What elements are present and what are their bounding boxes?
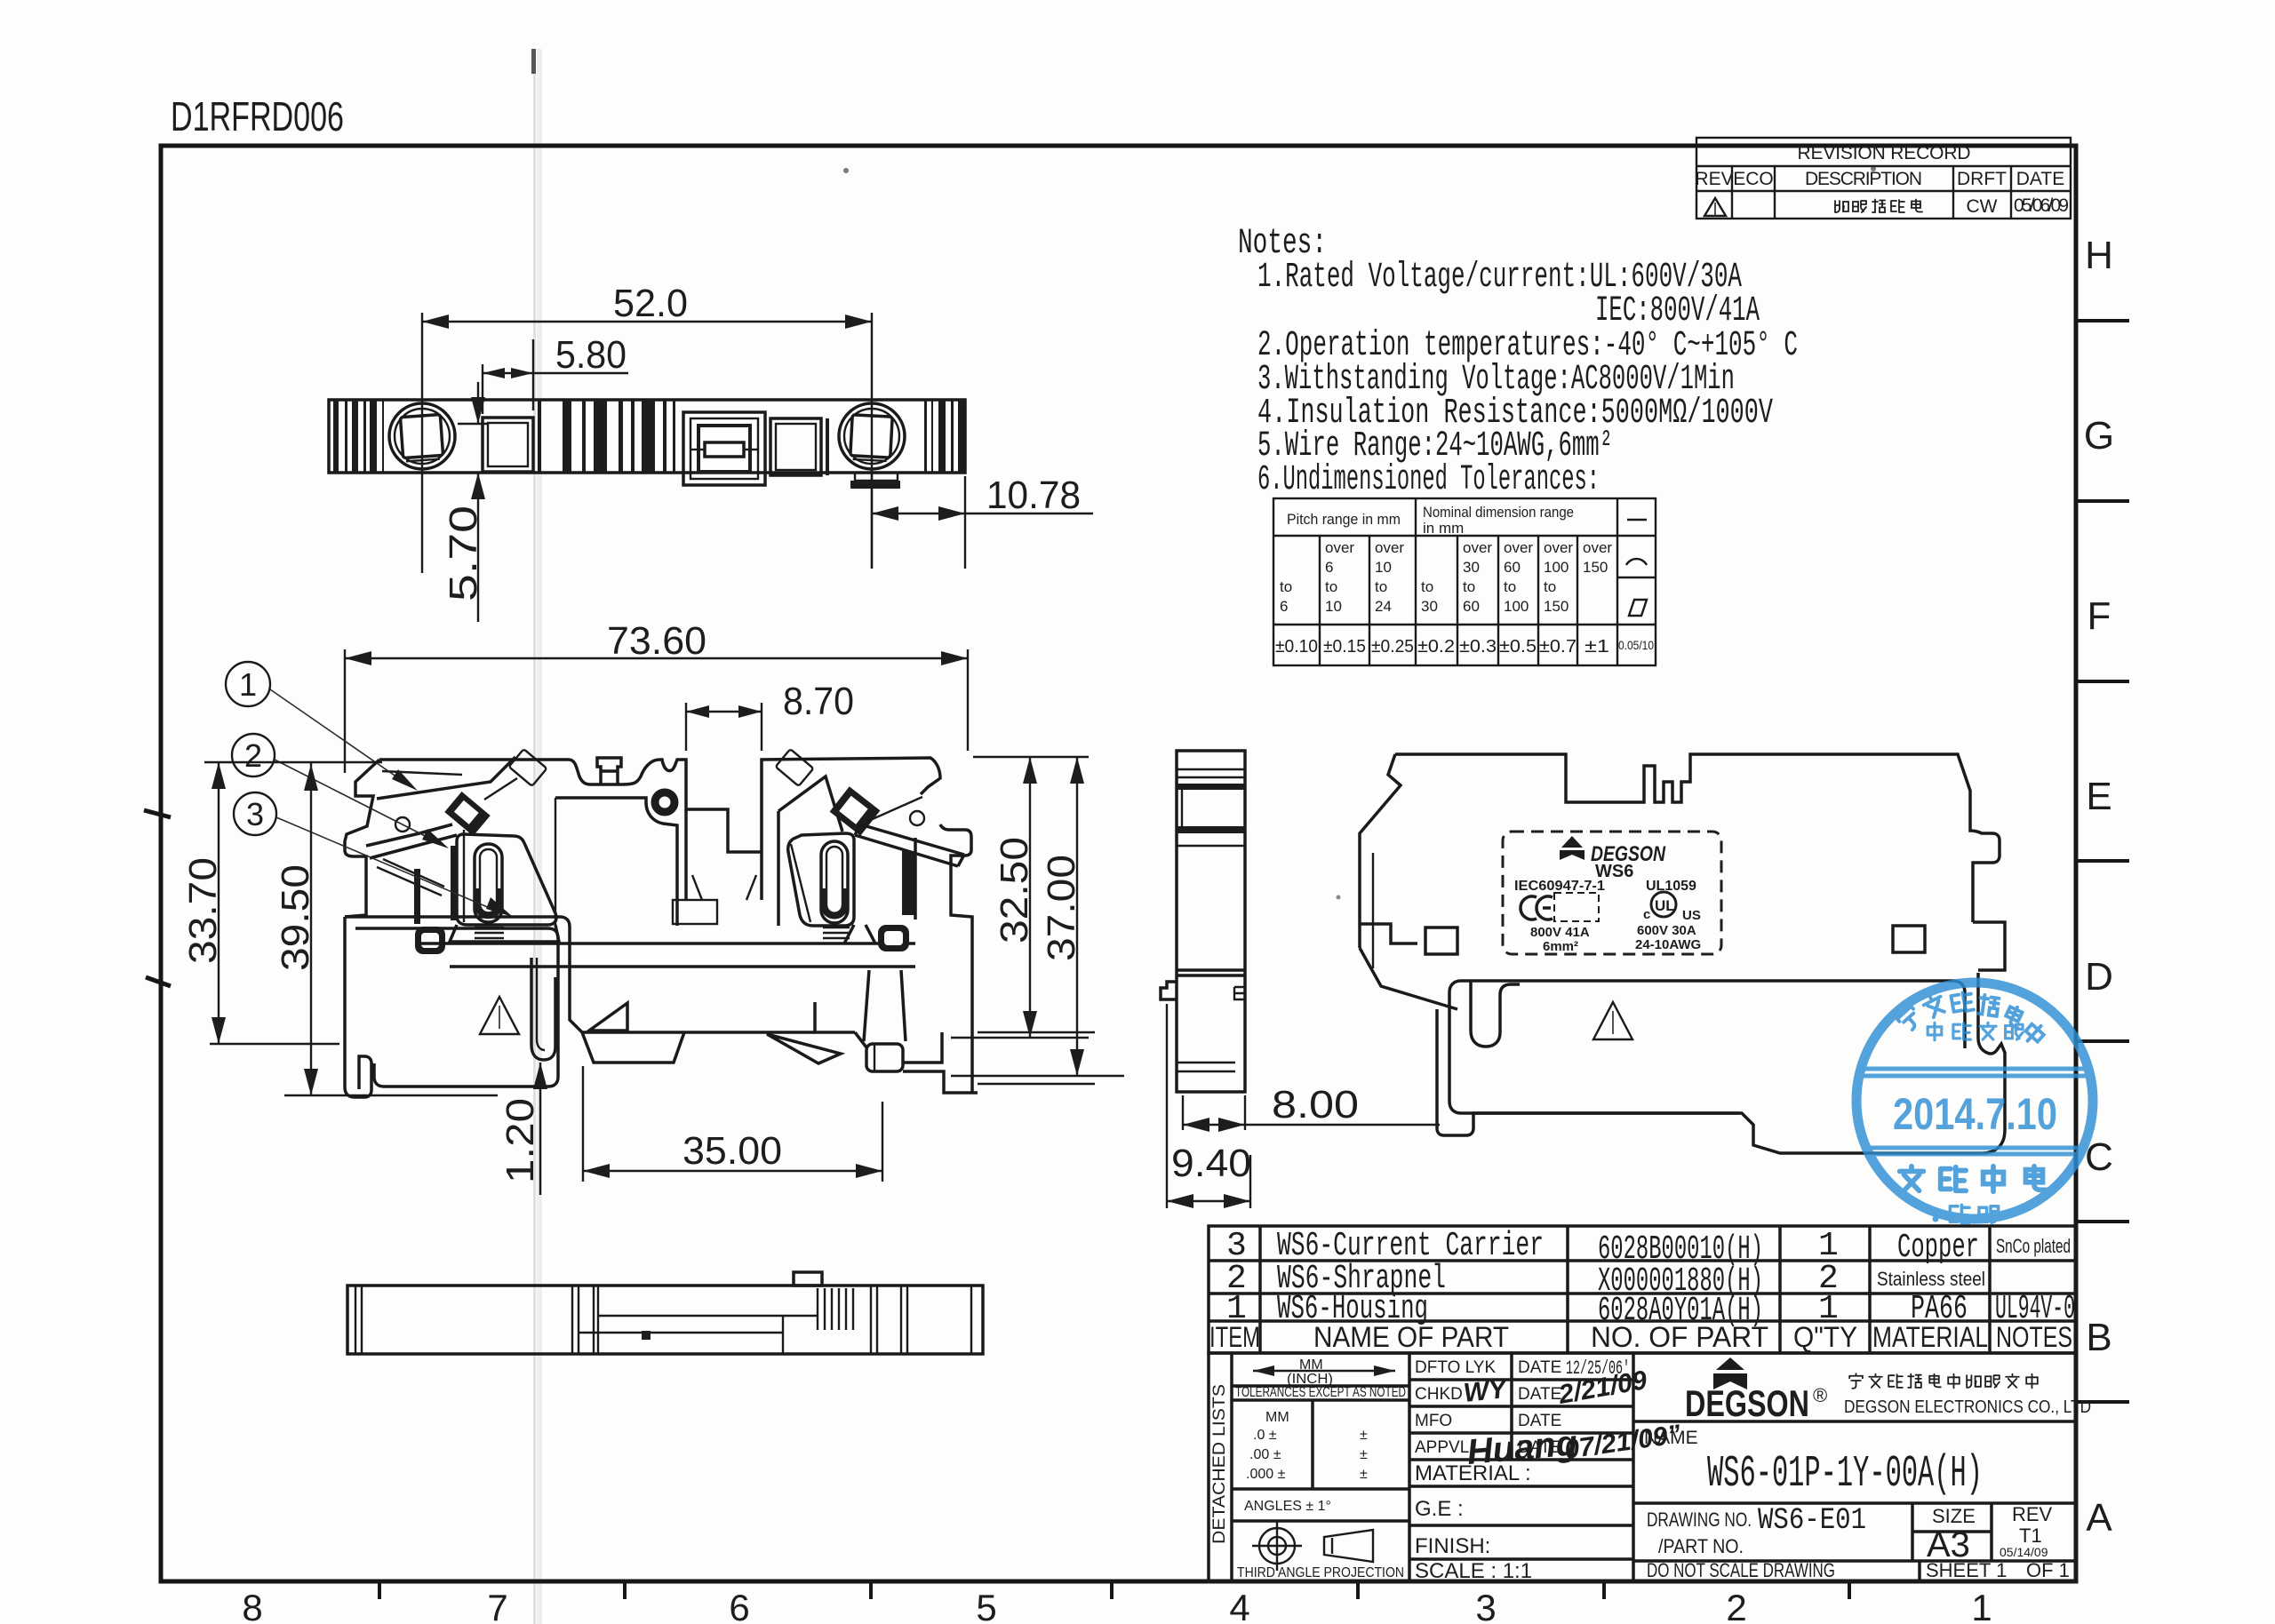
svg-text:5: 5	[976, 1587, 996, 1624]
svg-text:32.50: 32.50	[993, 837, 1036, 943]
svg-text:to: to	[1280, 578, 1292, 595]
svg-text:30: 30	[1421, 598, 1438, 615]
svg-text:24-10AWG: 24-10AWG	[1635, 937, 1701, 952]
svg-text:2: 2	[1726, 1587, 1746, 1624]
svg-text:7: 7	[487, 1587, 507, 1624]
svg-text:8: 8	[242, 1587, 262, 1624]
svg-text:±0.2: ±0.2	[1417, 637, 1455, 657]
svg-text:100: 100	[1544, 559, 1569, 576]
svg-text:NAME: NAME	[1644, 1428, 1698, 1448]
svg-text:.000 ±: .000 ±	[1246, 1467, 1286, 1482]
svg-text:5.70: 5.70	[442, 506, 485, 601]
svg-text:10: 10	[1325, 598, 1342, 615]
svg-text:±1: ±1	[1585, 637, 1609, 657]
svg-text:H: H	[2085, 234, 2113, 277]
svg-text:DFTO LYK: DFTO LYK	[1415, 1358, 1496, 1377]
svg-text:G: G	[2084, 414, 2114, 458]
svg-text:5.80: 5.80	[555, 333, 627, 377]
svg-text:over: over	[1375, 539, 1404, 556]
svg-text:SCALE : 1:1: SCALE : 1:1	[1415, 1559, 1532, 1583]
svg-text:6.Undimensioned Tolerances:: 6.Undimensioned Tolerances:	[1257, 460, 1600, 500]
svg-text:39.50: 39.50	[274, 864, 317, 971]
svg-text:6mm²: 6mm²	[1543, 939, 1578, 954]
svg-text:1: 1	[1971, 1587, 1992, 1624]
svg-text:100: 100	[1504, 598, 1529, 615]
svg-text:over: over	[1325, 539, 1354, 556]
svg-text:F: F	[2087, 594, 2111, 638]
svg-text:IEC60947-7-1: IEC60947-7-1	[1514, 879, 1605, 894]
svg-text:TOLERANCES EXCEPT AS NOTED: TOLERANCES EXCEPT AS NOTED	[1235, 1385, 1406, 1400]
svg-text:73.60: 73.60	[607, 619, 706, 663]
svg-text:8.70: 8.70	[783, 680, 854, 723]
svg-text:to: to	[1463, 578, 1475, 595]
svg-text:Q"TY: Q"TY	[1793, 1321, 1857, 1353]
svg-text:MM: MM	[1265, 1410, 1289, 1425]
svg-text:NO. OF PART: NO. OF PART	[1591, 1321, 1768, 1353]
svg-text:2014.7.10: 2014.7.10	[1893, 1089, 2057, 1139]
svg-text:1: 1	[239, 666, 257, 703]
svg-text:Stainless steel: Stainless steel	[1877, 1268, 1985, 1290]
svg-text:CW: CW	[1967, 196, 1998, 217]
svg-text:60: 60	[1463, 598, 1480, 615]
svg-text:±0.25: ±0.25	[1371, 637, 1414, 657]
svg-text:over: over	[1583, 539, 1612, 556]
svg-text:WS6-01P-1Y-00A(H): WS6-01P-1Y-00A(H)	[1707, 1449, 1983, 1500]
svg-text:Copper: Copper	[1897, 1229, 1979, 1267]
svg-text:in mm: in mm	[1423, 520, 1464, 537]
svg-text:Huang: Huang	[1465, 1423, 1579, 1472]
svg-text:REV: REV	[2012, 1503, 2053, 1525]
svg-text:10.78: 10.78	[986, 474, 1081, 517]
svg-text:4: 4	[1229, 1587, 1249, 1624]
svg-text:APPVL: APPVL	[1415, 1438, 1469, 1457]
svg-text:8.00: 8.00	[1272, 1083, 1359, 1126]
svg-text:DESCRIPTION: DESCRIPTION	[1805, 169, 1922, 189]
svg-text:±0.15: ±0.15	[1323, 637, 1366, 657]
svg-text:G.E :: G.E :	[1415, 1497, 1464, 1521]
svg-text:DRFT: DRFT	[1957, 169, 2007, 189]
svg-text:1.20: 1.20	[499, 1098, 542, 1183]
svg-text:DETACHED LISTS: DETACHED LISTS	[1210, 1384, 1229, 1544]
svg-text:600V 30A: 600V 30A	[1637, 923, 1696, 938]
svg-text:6: 6	[1280, 598, 1288, 615]
svg-text:33.70: 33.70	[181, 857, 225, 964]
svg-text:150: 150	[1544, 598, 1569, 615]
svg-text:30: 30	[1463, 559, 1480, 576]
svg-text:OF 1: OF 1	[2026, 1559, 2070, 1581]
svg-text:E: E	[2086, 775, 2111, 818]
svg-text:THIRD ANGLE PROJECTION: THIRD ANGLE PROJECTION	[1237, 1565, 1404, 1580]
svg-text:±: ±	[1360, 1447, 1368, 1462]
svg-text:FINISH:: FINISH:	[1415, 1534, 1490, 1558]
svg-text:D1RFRD006: D1RFRD006	[171, 93, 344, 139]
svg-text:DRAWING NO.: DRAWING NO.	[1647, 1509, 1752, 1531]
svg-text:0.05/10: 0.05/10	[1618, 638, 1654, 652]
svg-text:A3: A3	[1927, 1525, 1970, 1564]
svg-text:/PART NO.: /PART NO.	[1658, 1535, 1744, 1557]
svg-text:3: 3	[1475, 1587, 1496, 1624]
svg-text:over: over	[1463, 539, 1492, 556]
svg-text:UL: UL	[1655, 897, 1675, 914]
svg-text:to: to	[1421, 578, 1433, 595]
svg-text:6: 6	[729, 1587, 749, 1624]
svg-text:2: 2	[244, 737, 262, 774]
svg-text:±0.7: ±0.7	[1539, 637, 1577, 657]
svg-text:ITEM: ITEM	[1209, 1321, 1260, 1353]
svg-text:05/14/09: 05/14/09	[2000, 1545, 2048, 1559]
svg-text:CHKD: CHKD	[1415, 1385, 1463, 1404]
svg-text:DATE: DATE	[2016, 169, 2064, 189]
svg-text:®: ®	[1813, 1384, 1827, 1406]
svg-text:±0.5: ±0.5	[1499, 637, 1537, 657]
svg-text:05/06/09: 05/06/09	[2014, 195, 2069, 216]
svg-text:10: 10	[1375, 559, 1392, 576]
svg-text:REVISION RECORD: REVISION RECORD	[1798, 143, 1971, 163]
svg-text:D: D	[2085, 955, 2113, 999]
svg-text:24: 24	[1375, 598, 1392, 615]
svg-text:35.00: 35.00	[682, 1129, 782, 1173]
svg-text:37.00: 37.00	[1040, 855, 1083, 961]
svg-text:NOTES: NOTES	[1996, 1321, 2072, 1353]
svg-text:over: over	[1504, 539, 1533, 556]
svg-text:800V 41A: 800V 41A	[1530, 925, 1590, 940]
svg-text:Pitch range in mm: Pitch range in mm	[1287, 511, 1401, 528]
svg-text:±: ±	[1360, 1428, 1368, 1443]
svg-text:150: 150	[1583, 559, 1608, 576]
svg-text:60: 60	[1504, 559, 1521, 576]
svg-text:Nominal dimension range: Nominal dimension range	[1423, 504, 1574, 521]
svg-text:WY: WY	[1462, 1374, 1510, 1408]
svg-text:3: 3	[246, 796, 264, 832]
svg-text:SIZE: SIZE	[1932, 1505, 1976, 1527]
svg-text:over: over	[1544, 539, 1573, 556]
svg-text:.0 ±: .0 ±	[1253, 1428, 1277, 1443]
svg-text:MFO: MFO	[1415, 1412, 1452, 1430]
svg-text:A: A	[2086, 1496, 2112, 1540]
svg-text:c: c	[1643, 907, 1650, 922]
svg-text:DATE: DATE	[1518, 1358, 1561, 1377]
svg-text:UL1059: UL1059	[1646, 879, 1696, 894]
svg-text:WS6-E01: WS6-E01	[1758, 1504, 1866, 1538]
svg-text:to: to	[1325, 578, 1337, 595]
svg-text:ANGLES ± 1°: ANGLES ± 1°	[1244, 1499, 1331, 1514]
svg-text:.00 ±: .00 ±	[1249, 1447, 1281, 1462]
svg-text:MATERIAL: MATERIAL	[1872, 1321, 1988, 1353]
svg-text:to: to	[1504, 578, 1516, 595]
svg-text:DEGSON ELECTRONICS CO., LTD: DEGSON ELECTRONICS CO., LTD	[1844, 1397, 2091, 1417]
svg-text:ECO: ECO	[1733, 169, 1774, 189]
svg-text:DATE: DATE	[1518, 1385, 1561, 1404]
svg-text:to: to	[1375, 578, 1387, 595]
svg-text:to: to	[1544, 578, 1556, 595]
svg-text:±: ±	[1360, 1467, 1368, 1482]
svg-text:NAME OF PART: NAME OF PART	[1313, 1321, 1509, 1353]
svg-text:±0.3: ±0.3	[1459, 637, 1497, 657]
svg-text:US: US	[1682, 908, 1701, 923]
svg-text:B: B	[2086, 1316, 2111, 1359]
svg-text:9.40: 9.40	[1171, 1142, 1251, 1185]
svg-text:DO NOT SCALE DRAWING: DO NOT SCALE DRAWING	[1647, 1559, 1835, 1581]
svg-text:52.0: 52.0	[613, 282, 688, 325]
svg-text:DEGSON: DEGSON	[1685, 1382, 1809, 1424]
svg-text:±0.10: ±0.10	[1275, 637, 1318, 657]
svg-text:T1: T1	[2019, 1524, 2042, 1547]
svg-text:SnCo plated: SnCo plated	[1996, 1235, 2071, 1257]
svg-text:6: 6	[1325, 559, 1333, 576]
svg-text:REV: REV	[1695, 169, 1733, 189]
